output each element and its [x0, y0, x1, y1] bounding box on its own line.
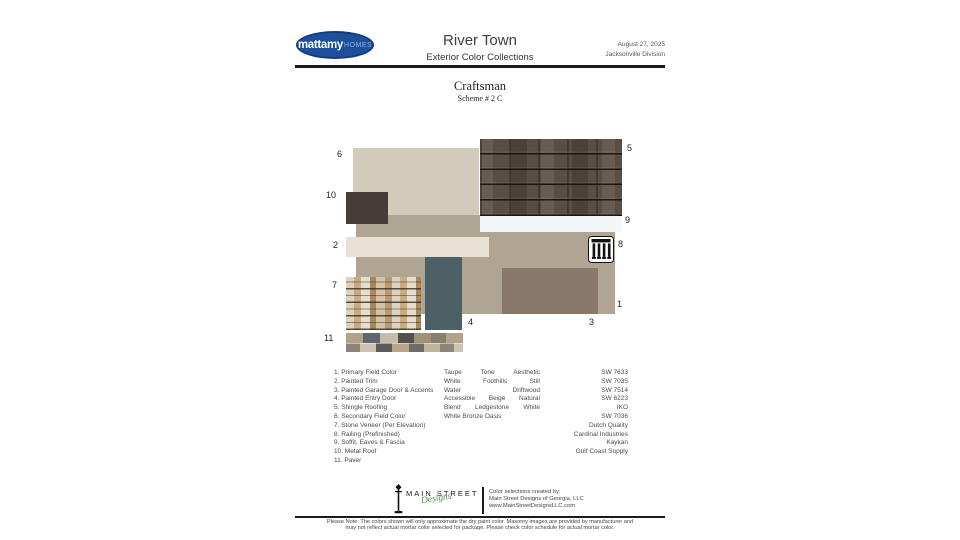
swatch-painted-trim — [346, 237, 489, 257]
mattamy-logo-brand: mattamy — [298, 39, 343, 51]
legend-item-label: 1. Primary Field Color — [334, 369, 446, 378]
swatch-garage-door — [502, 268, 598, 314]
date-text: August 27, 2025 — [540, 40, 665, 50]
footer-divider — [482, 487, 484, 514]
swatch-number-6: 6 — [337, 149, 342, 159]
swatch-number-1: 1 — [617, 299, 622, 309]
legend-item-label: 6. Secondary Field Color — [334, 413, 446, 422]
disclaimer-line: may not reflect actual mortar color sele… — [280, 525, 680, 531]
legend-item-label: 8. Railing (Prefinished) — [334, 431, 446, 440]
credit-line: www.MainStreetDesignsLLC.com — [489, 503, 584, 510]
credit-line: Color selections created by: — [489, 489, 584, 496]
legend-item-label: 3. Painted Garage Door & Accents — [334, 387, 446, 396]
legend-item-code: SW 7035 — [500, 378, 628, 387]
legend-item-label: 9. Soffit, Eaves & Fascia — [334, 439, 446, 448]
legend-item-code: Gulf Coast Supply — [500, 448, 628, 457]
legend-item-label: 4. Painted Entry Door — [334, 395, 446, 404]
credit-line: Main Street Designs of Georgia, LLC — [489, 496, 584, 503]
legend-item-label: 7. Stone Veneer (Per Elevation) — [334, 422, 446, 431]
legend-item-label: 2. Painted Trim — [334, 378, 446, 387]
legend-item-code: Cardinal Industries — [500, 431, 628, 440]
color-sheet-page: mattamy HOMES River Town Exterior Color … — [0, 0, 960, 540]
swatch-number-4: 4 — [468, 317, 473, 327]
legend-item-label: 5. Shingle Roofing — [334, 404, 446, 413]
swatch-number-11: 11 — [324, 333, 333, 343]
legend-item-names: 1. Primary Field Color2. Painted Trim3. … — [334, 369, 446, 466]
railing-icon — [588, 236, 614, 263]
swatch-number-9: 9 — [625, 215, 630, 225]
swatch-number-7: 7 — [332, 280, 337, 290]
disclaimer-note: Please Note: The colors shown will only … — [280, 519, 680, 532]
legend-item-code: Kaykan — [500, 439, 628, 448]
legend-codes: SW 7633SW 7035SW 7514SW 6223IKOSW 7036Du… — [500, 369, 628, 457]
swatch-number-2: 2 — [333, 240, 338, 250]
legend-item-code: SW 6223 — [500, 395, 628, 404]
swatch-entry-door — [425, 257, 462, 330]
legend-item-code: IKO — [500, 404, 628, 413]
legend-item-code: SW 7514 — [500, 387, 628, 396]
swatch-number-10: 10 — [326, 190, 336, 200]
swatch-shingle-roofing — [480, 139, 622, 216]
legend-item-code: SW 7633 — [500, 369, 628, 378]
mattamy-logo: mattamy HOMES — [296, 31, 374, 59]
paver-texture-row — [346, 343, 463, 353]
paver-texture-row — [346, 333, 463, 343]
scheme-number: Scheme # 2 C — [380, 94, 580, 103]
legend-item-code: SW 7036 — [500, 413, 628, 422]
swatch-metal-roof — [346, 192, 388, 224]
main-street-designs-logo: MAIN STREET Designs — [393, 484, 481, 516]
legend-item-label: 10. Metal Roof — [334, 448, 446, 457]
mattamy-logo-suffix: HOMES — [344, 42, 372, 49]
swatch-number-3: 3 — [589, 317, 594, 327]
swatch-paver — [346, 333, 463, 352]
swatch-number-5: 5 — [627, 143, 632, 153]
header-rule — [295, 65, 665, 68]
date-division-block: August 27, 2025 Jacksonville Division — [540, 40, 665, 60]
scheme-style-name: Craftsman — [380, 79, 580, 94]
credit-block: Color selections created by:Main Street … — [489, 489, 584, 510]
swatch-stone-veneer — [346, 277, 421, 330]
swatch-number-8: 8 — [618, 239, 623, 249]
legend-item-code: Dutch Quality — [500, 422, 628, 431]
division-text: Jacksonville Division — [540, 50, 665, 60]
swatch-soffit-eaves-fascia — [480, 216, 622, 232]
lamppost-icon — [393, 484, 404, 515]
footer-rule — [295, 516, 665, 518]
legend-item-label: 11. Paver — [334, 457, 446, 466]
